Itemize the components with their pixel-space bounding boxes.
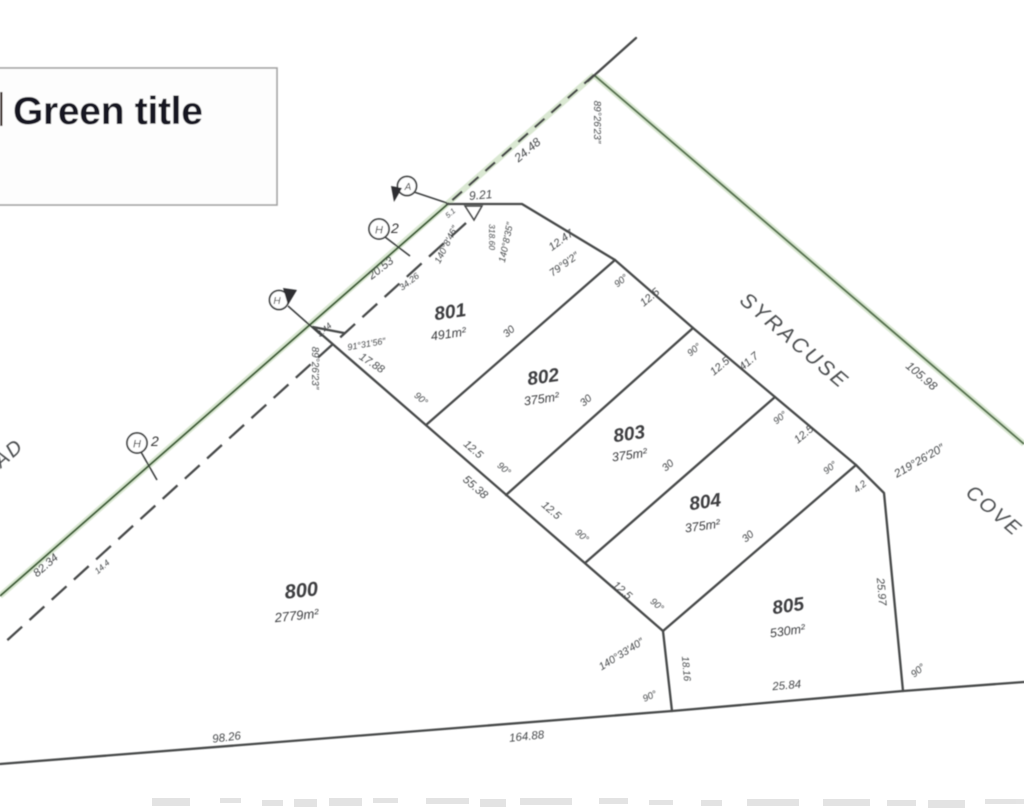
svg-text:804: 804: [688, 490, 723, 515]
svg-text:H: H: [273, 296, 281, 307]
svg-text:89°26'23″: 89°26'23″: [591, 101, 602, 144]
svg-text:89°26'23″: 89°26'23″: [309, 347, 320, 390]
svg-text:801: 801: [433, 300, 467, 325]
svg-text:800: 800: [284, 578, 319, 603]
svg-text:802: 802: [526, 365, 561, 390]
svg-text:9.21: 9.21: [468, 187, 492, 203]
svg-text:2: 2: [150, 433, 159, 449]
svg-text:805: 805: [771, 594, 806, 619]
svg-text:2: 2: [390, 220, 399, 236]
svg-text:H: H: [133, 439, 141, 451]
svg-text:A: A: [404, 182, 412, 193]
svg-text:H: H: [375, 225, 383, 237]
svg-text:25.97: 25.97: [874, 577, 889, 607]
svg-text:318.60: 318.60: [487, 224, 497, 250]
svg-text:18.16: 18.16: [679, 656, 692, 682]
svg-text:Green title: Green title: [13, 90, 203, 133]
svg-text:803: 803: [612, 422, 647, 447]
